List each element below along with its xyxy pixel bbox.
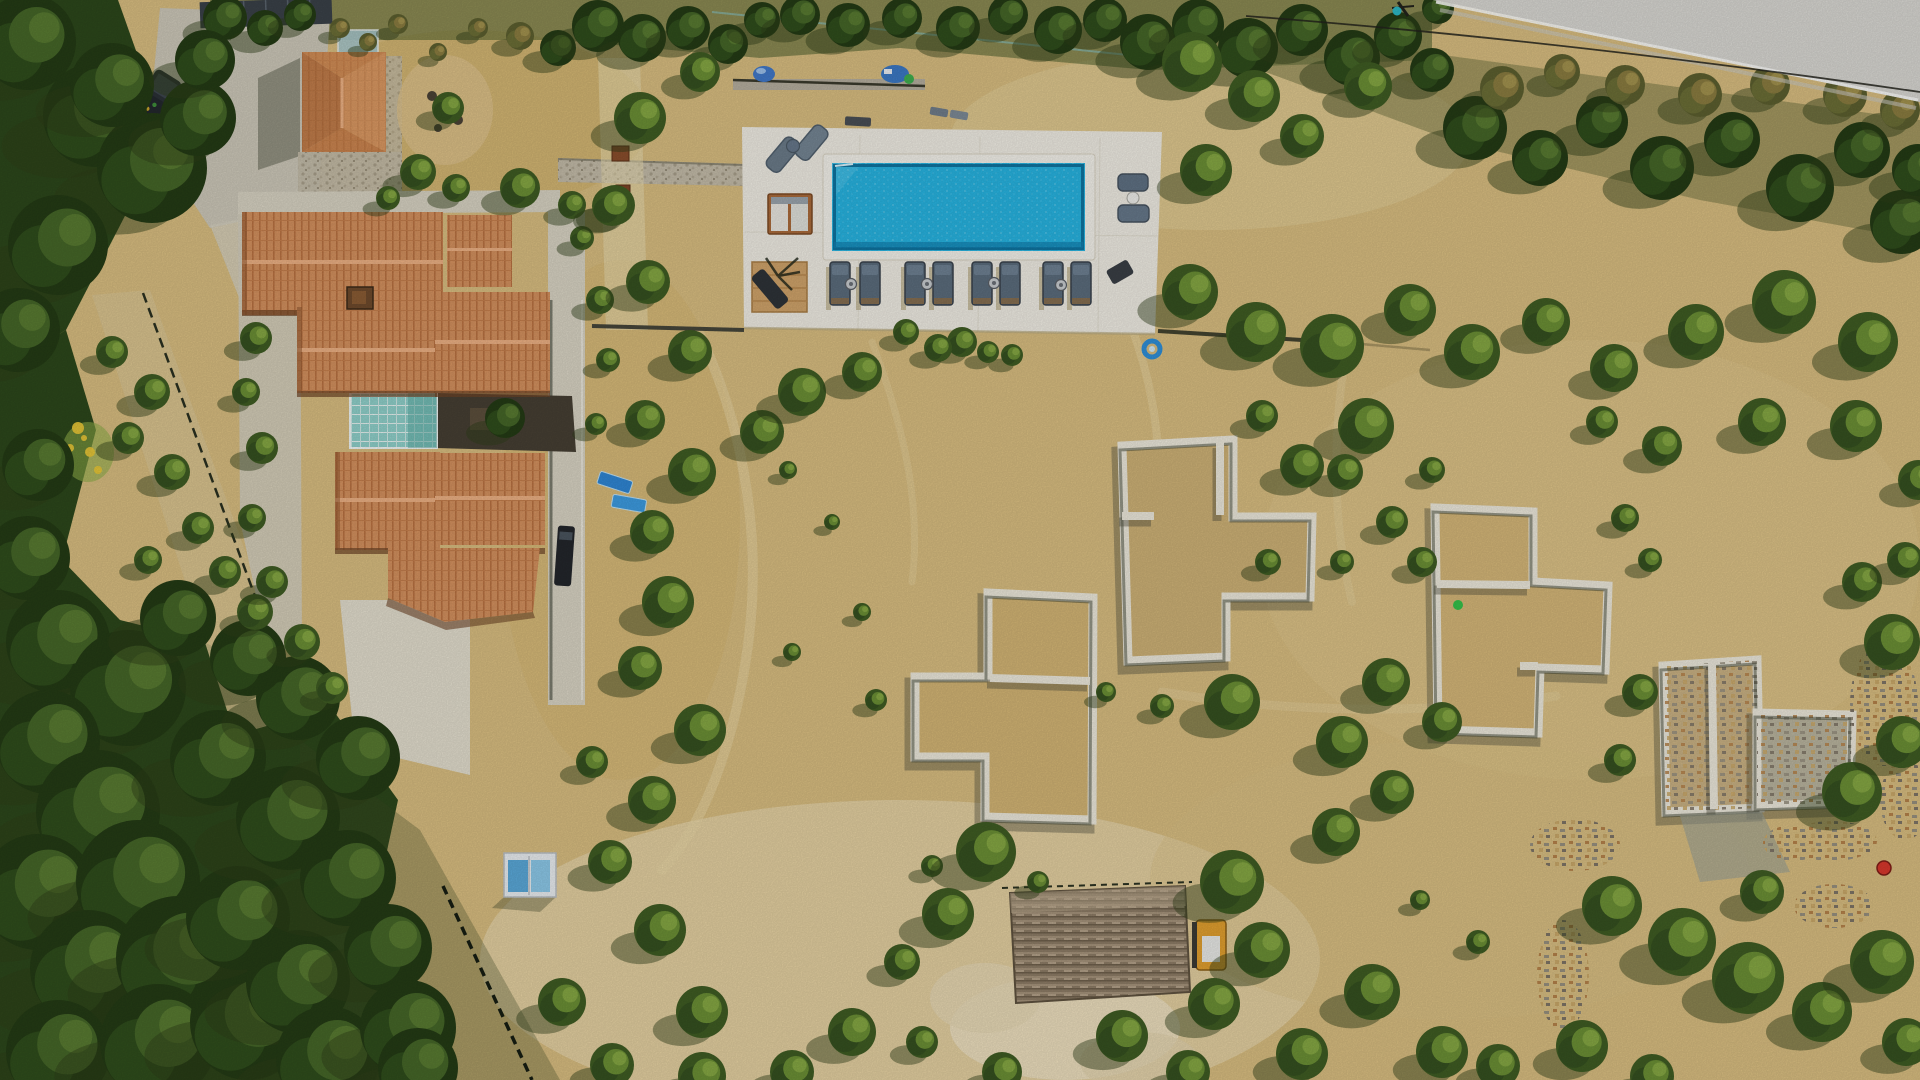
aerial-photo [0, 0, 1920, 1080]
photo-grain-overlay [0, 0, 1920, 1080]
aerial-photo-stage [0, 0, 1920, 1080]
